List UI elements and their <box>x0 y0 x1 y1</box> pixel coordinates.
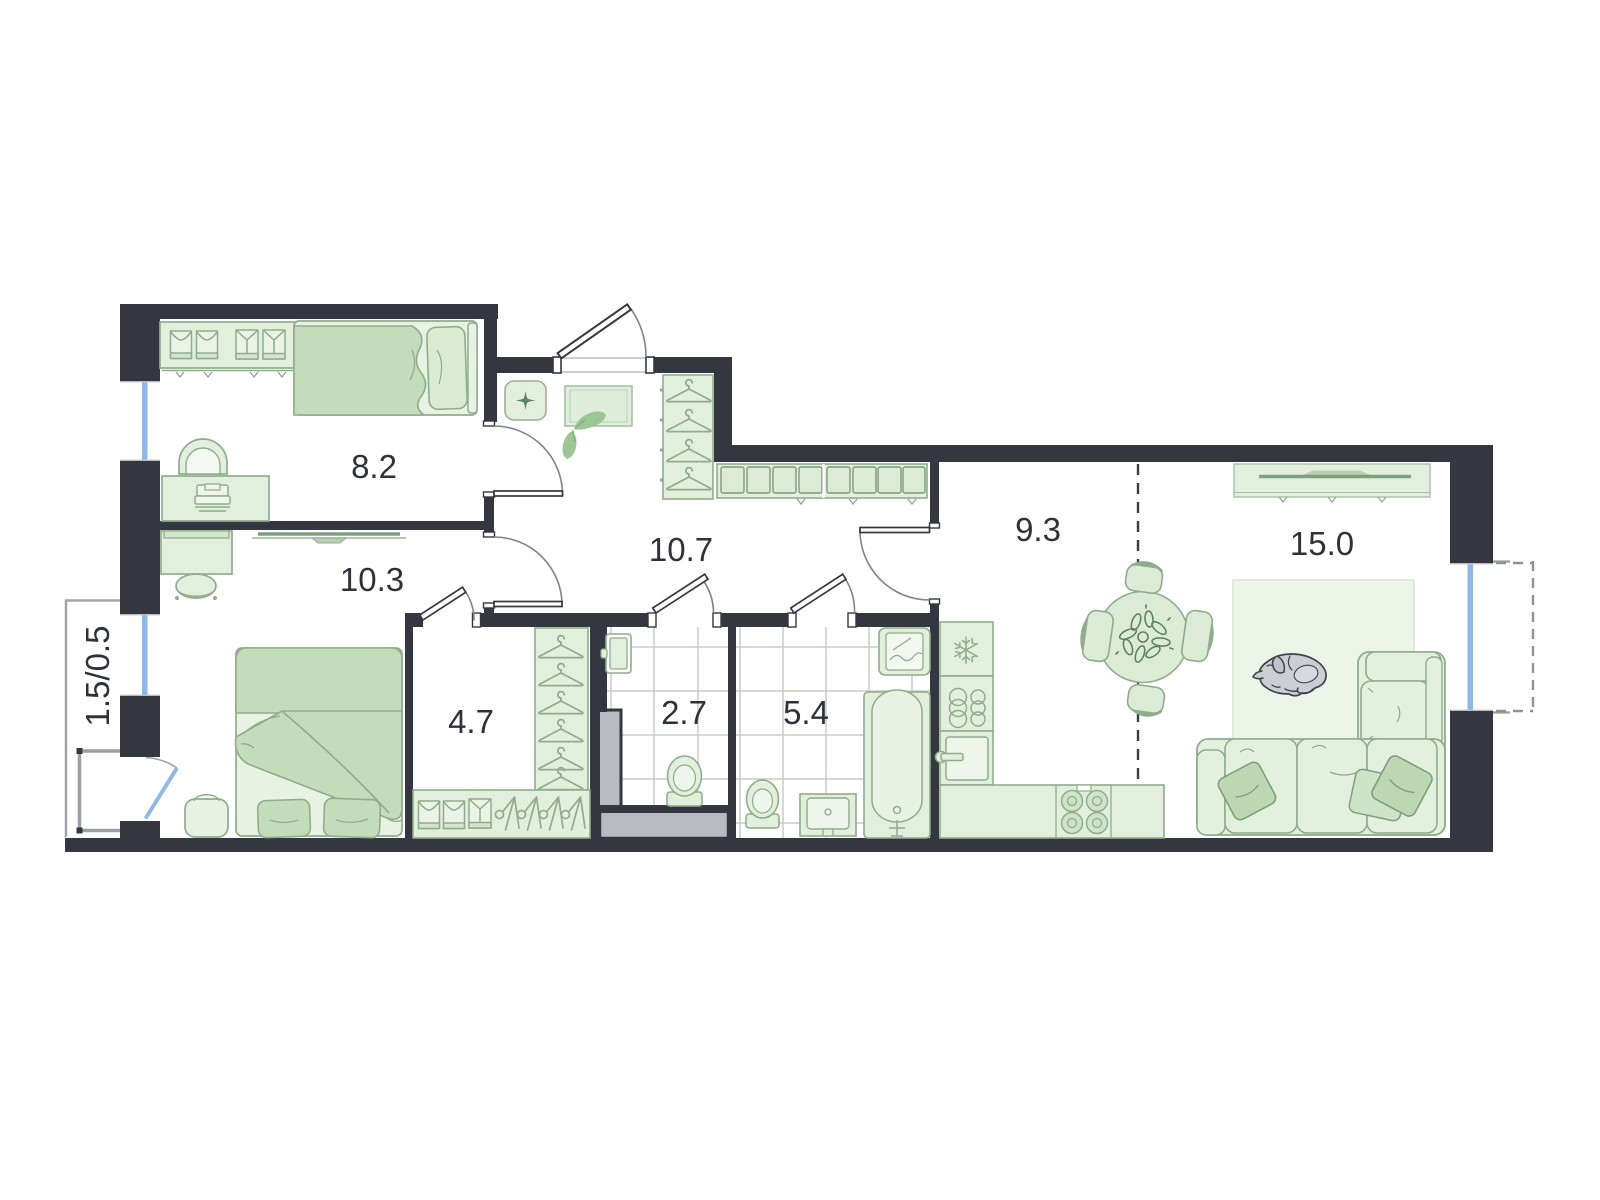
svg-text:10.7: 10.7 <box>649 531 713 568</box>
svg-text:2.7: 2.7 <box>661 694 707 731</box>
svg-text:5.4: 5.4 <box>783 694 829 731</box>
svg-text:1.5/0.5: 1.5/0.5 <box>79 626 116 727</box>
svg-text:4.7: 4.7 <box>448 703 494 740</box>
svg-text:8.2: 8.2 <box>351 448 397 485</box>
svg-text:10.3: 10.3 <box>340 561 404 598</box>
svg-text:15.0: 15.0 <box>1290 525 1354 562</box>
svg-text:9.3: 9.3 <box>1015 511 1061 548</box>
